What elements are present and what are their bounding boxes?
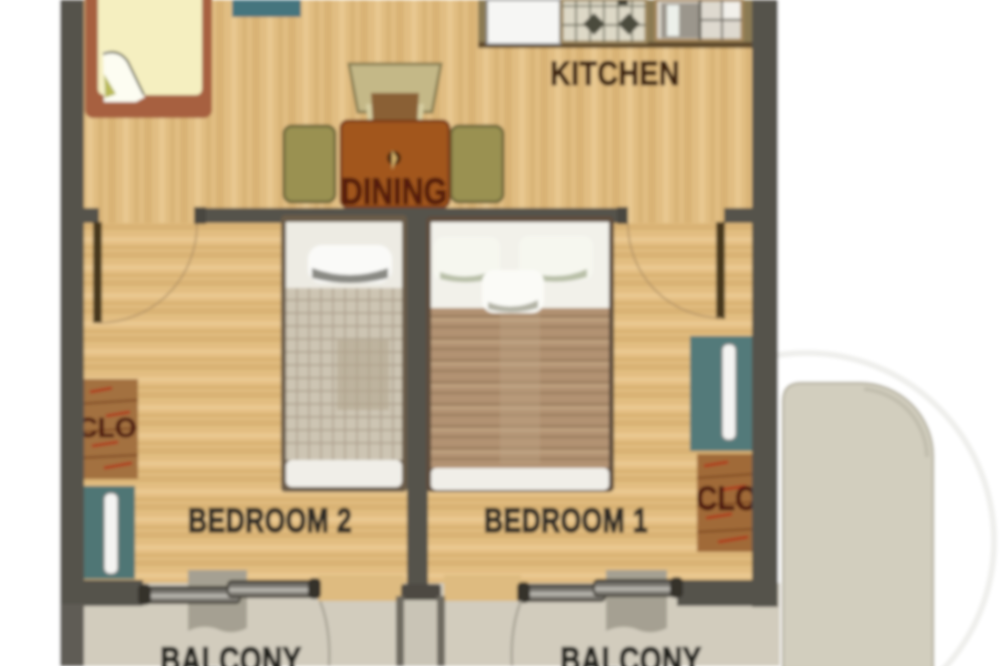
svg-text:BEDROOM 1: BEDROOM 1	[484, 502, 648, 540]
svg-text:BALCONY: BALCONY	[160, 640, 301, 666]
svg-text:BALCONY: BALCONY	[560, 640, 701, 666]
svg-text:BEDROOM 2: BEDROOM 2	[188, 502, 352, 540]
svg-text:DINING: DINING	[341, 171, 447, 213]
svg-text:CLO: CLO	[697, 479, 758, 518]
svg-text:KITCHEN: KITCHEN	[550, 55, 680, 93]
svg-text:CLO: CLO	[77, 412, 136, 443]
